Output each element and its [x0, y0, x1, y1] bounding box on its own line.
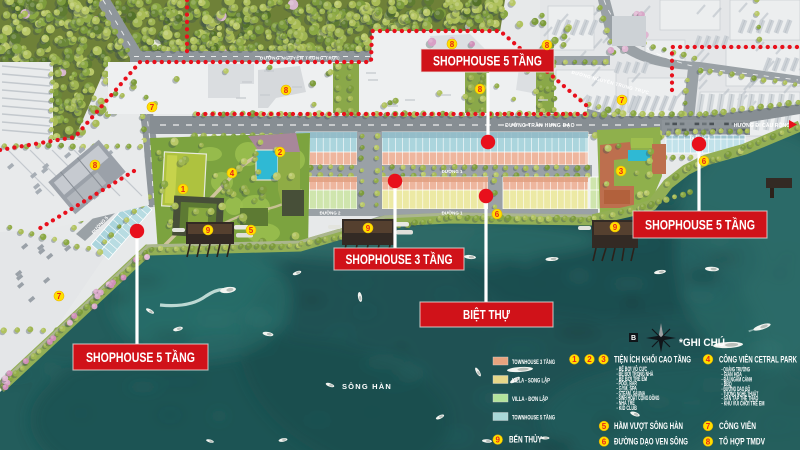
svg-text:SHOPHOUSE 5 TẦNG: SHOPHOUSE 5 TẦNG [645, 217, 755, 233]
svg-text:5: 5 [249, 226, 254, 235]
svg-text:6: 6 [702, 157, 707, 166]
svg-text:BIỆT THỰ: BIỆT THỰ [463, 307, 510, 322]
svg-text:TỔ HỢP TMDV: TỔ HỢP TMDV [719, 436, 766, 447]
svg-text:BẾN THỦY: BẾN THỦY [509, 434, 543, 445]
svg-text:ĐƯỜNG NGUYỄN TRUNG TRỰC: ĐƯỜNG NGUYỄN TRUNG TRỰC [260, 54, 340, 61]
svg-text:7: 7 [620, 96, 625, 105]
svg-text:- KID CLUB: - KID CLUB [617, 405, 638, 412]
svg-text:SHOPHOUSE 5 TẦNG: SHOPHOUSE 5 TẦNG [86, 349, 195, 365]
svg-text:*GHI CHÚ: *GHI CHÚ [679, 336, 725, 349]
svg-text:HƯỚNG ĐI CẦU RỒNG: HƯỚNG ĐI CẦU RỒNG [734, 121, 791, 129]
svg-text:HẦM VƯỢT SÔNG HÀN: HẦM VƯỢT SÔNG HÀN [614, 420, 683, 431]
svg-text:VILLA - ĐƠN LẬP: VILLA - ĐƠN LẬP [512, 394, 548, 403]
svg-text:9: 9 [495, 436, 500, 445]
svg-text:ĐƯỜNG 1: ĐƯỜNG 1 [442, 211, 463, 216]
svg-text:8: 8 [284, 86, 289, 95]
svg-text:8: 8 [450, 40, 455, 49]
svg-text:- KHU VUI CHƠI TRẺ EM: - KHU VUI CHƠI TRẺ EM [722, 400, 765, 407]
svg-text:ĐƯỜNG 2: ĐƯỜNG 2 [320, 211, 341, 216]
svg-text:ĐƯỜNG TRẦN HƯNG ĐẠO: ĐƯỜNG TRẦN HƯNG ĐẠO [505, 121, 575, 129]
svg-text:2: 2 [278, 148, 283, 157]
svg-text:9: 9 [366, 224, 371, 233]
svg-text:ĐƯỜNG DẠO VEN SÔNG: ĐƯỜNG DẠO VEN SÔNG [614, 436, 688, 447]
svg-text:B: B [631, 335, 636, 342]
svg-text:9: 9 [206, 226, 211, 235]
svg-text:9: 9 [613, 223, 618, 232]
svg-text:4: 4 [230, 169, 235, 178]
svg-text:CÔNG VIÊN CETRAL PARK: CÔNG VIÊN CETRAL PARK [719, 353, 797, 364]
svg-text:8: 8 [545, 41, 550, 50]
svg-text:6: 6 [602, 437, 607, 446]
svg-text:SHOPHOUSE 5 TẦNG: SHOPHOUSE 5 TẦNG [433, 53, 542, 68]
svg-text:1: 1 [181, 185, 186, 194]
svg-text:8: 8 [478, 85, 483, 94]
svg-text:8: 8 [93, 161, 98, 170]
svg-text:TIỆN ÍCH KHỐI CAO TẦNG: TIỆN ÍCH KHỐI CAO TẦNG [614, 353, 691, 364]
svg-text:3: 3 [601, 355, 606, 364]
svg-text:ĐƯỜNG 1: ĐƯỜNG 1 [442, 169, 463, 174]
svg-text:7: 7 [706, 422, 711, 431]
svg-text:7: 7 [150, 103, 155, 112]
svg-text:1: 1 [572, 355, 577, 364]
svg-text:2: 2 [587, 355, 592, 364]
svg-text:4: 4 [706, 355, 711, 364]
svg-text:6: 6 [495, 210, 500, 219]
svg-text:8: 8 [706, 437, 711, 446]
svg-text:3: 3 [619, 167, 624, 176]
svg-text:7: 7 [57, 292, 62, 301]
svg-text:VILLA - SONG LẬP: VILLA - SONG LẬP [512, 376, 550, 385]
svg-text:5: 5 [602, 422, 607, 431]
svg-text:SHOPHOUSE 3 TẦNG: SHOPHOUSE 3 TẦNG [346, 252, 453, 267]
svg-text:CÔNG VIÊN: CÔNG VIÊN [719, 420, 756, 431]
svg-text:SÔNG HÀN: SÔNG HÀN [342, 382, 392, 391]
